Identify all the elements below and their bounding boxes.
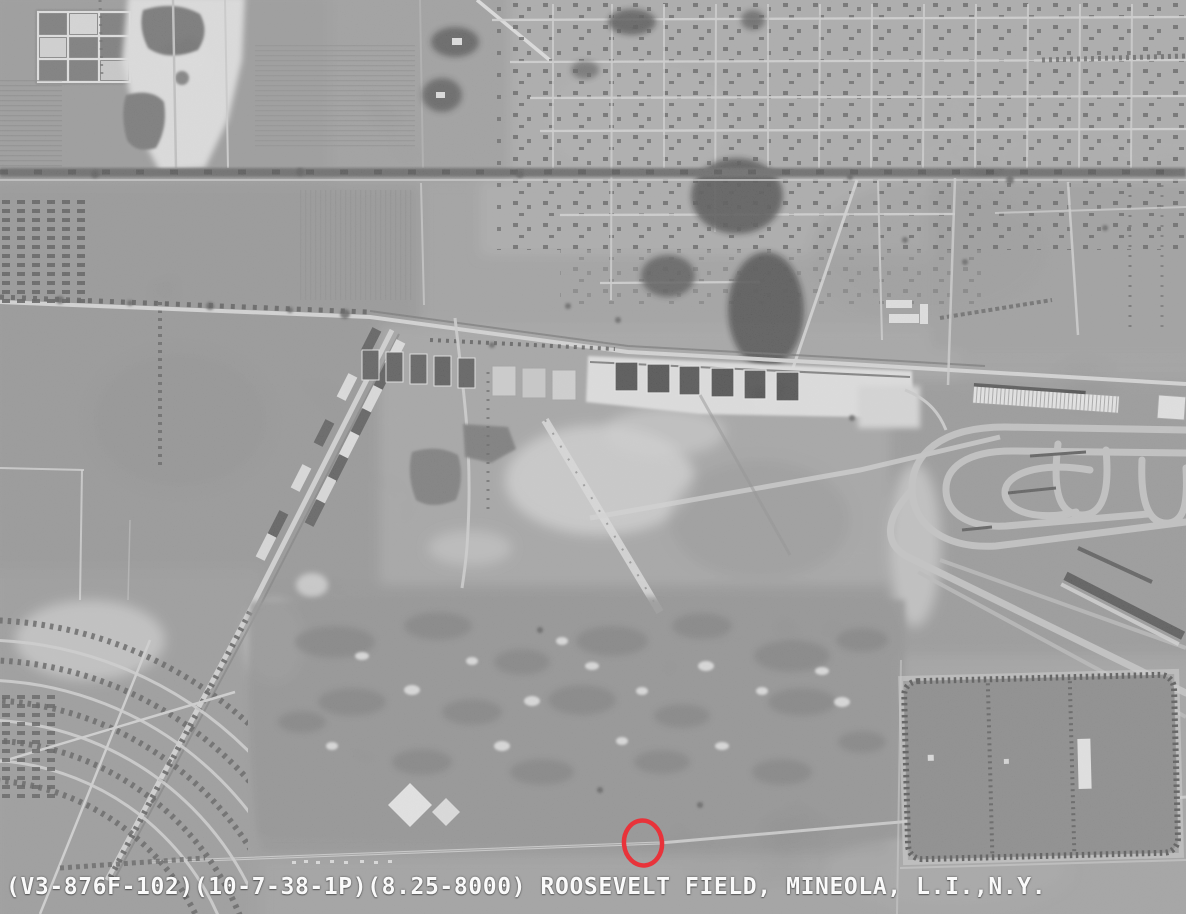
photo-grain-overlay [0, 0, 1186, 914]
aerial-photo-roosevelt-field [0, 0, 1186, 914]
aerial-photo-screenshot: (V3-876F-102)(10-7-38-1P)(8.25-8000) ROO… [0, 0, 1186, 914]
photo-caption: (V3-876F-102)(10-7-38-1P)(8.25-8000) ROO… [6, 874, 1186, 900]
